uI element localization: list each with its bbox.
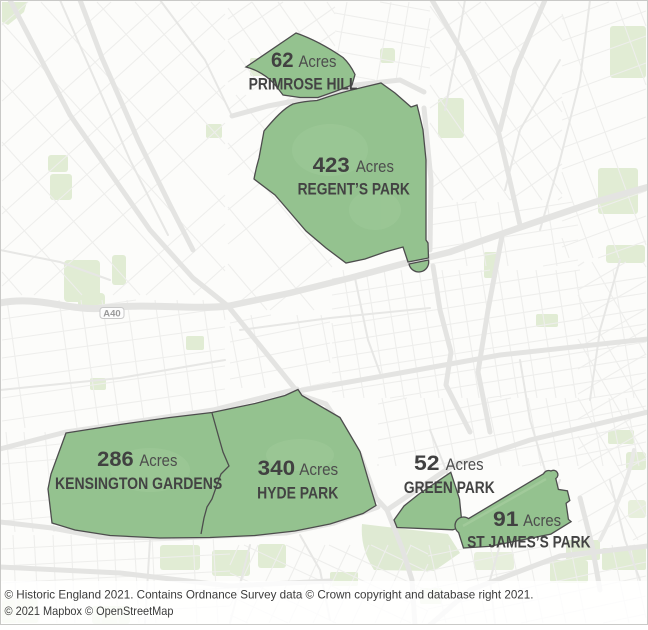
svg-text:GREEN PARK: GREEN PARK bbox=[404, 478, 495, 497]
svg-text:286: 286 bbox=[97, 448, 134, 471]
svg-text:Acres: Acres bbox=[299, 52, 337, 71]
svg-text:Acres: Acres bbox=[139, 451, 177, 470]
svg-text:ST JAMES’S PARK: ST JAMES’S PARK bbox=[467, 533, 591, 552]
svg-text:52: 52 bbox=[414, 452, 440, 475]
svg-text:KENSINGTON GARDENS: KENSINGTON GARDENS bbox=[55, 474, 222, 493]
svg-text:A40: A40 bbox=[103, 308, 120, 319]
svg-text:Acres: Acres bbox=[356, 157, 394, 176]
svg-text:HYDE PARK: HYDE PARK bbox=[257, 484, 339, 503]
svg-text:PRIMROSE HILL: PRIMROSE HILL bbox=[249, 75, 358, 94]
svg-text:Acres: Acres bbox=[446, 455, 484, 474]
svg-text:340: 340 bbox=[258, 457, 296, 480]
svg-text:Acres: Acres bbox=[299, 460, 338, 479]
svg-text:REGENT’S PARK: REGENT’S PARK bbox=[298, 180, 411, 199]
svg-text:62: 62 bbox=[271, 49, 294, 72]
svg-text:© Historic England 2021. Conta: © Historic England 2021. Contains Ordnan… bbox=[5, 588, 534, 602]
svg-text:423: 423 bbox=[313, 154, 350, 177]
svg-text:Acres: Acres bbox=[523, 511, 561, 530]
svg-text:91: 91 bbox=[493, 508, 519, 531]
svg-text:© 2021 Mapbox © OpenStreetMap: © 2021 Mapbox © OpenStreetMap bbox=[5, 604, 174, 618]
